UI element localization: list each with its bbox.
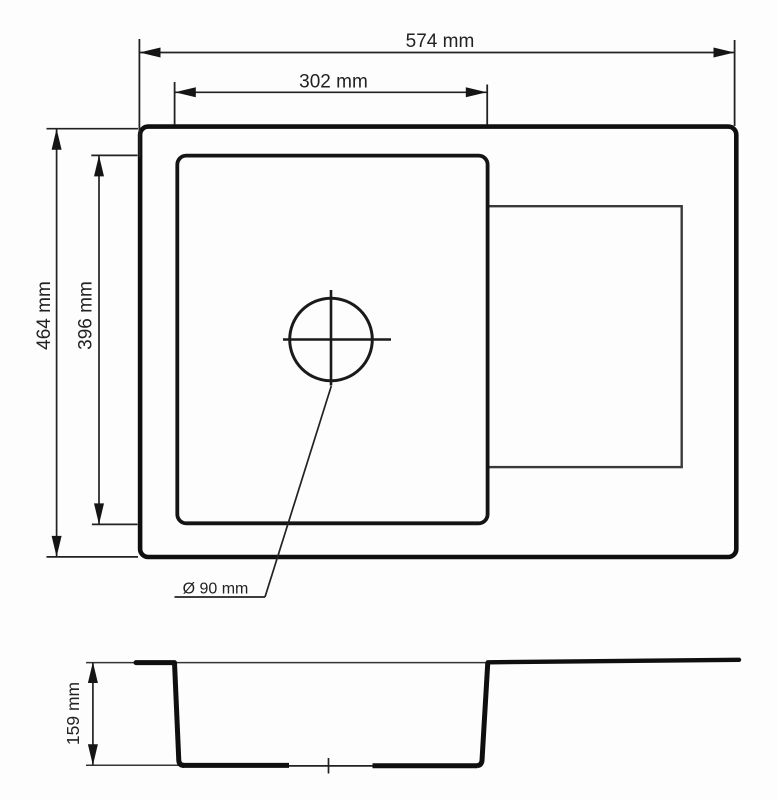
svg-text:302 mm: 302 mm [299, 72, 368, 93]
svg-text:Ø 90 mm: Ø 90 mm [183, 581, 249, 598]
svg-text:159 mm: 159 mm [63, 682, 83, 745]
svg-text:574 mm: 574 mm [406, 31, 475, 52]
svg-text:464 mm: 464 mm [34, 281, 55, 350]
svg-text:396 mm: 396 mm [76, 281, 97, 350]
